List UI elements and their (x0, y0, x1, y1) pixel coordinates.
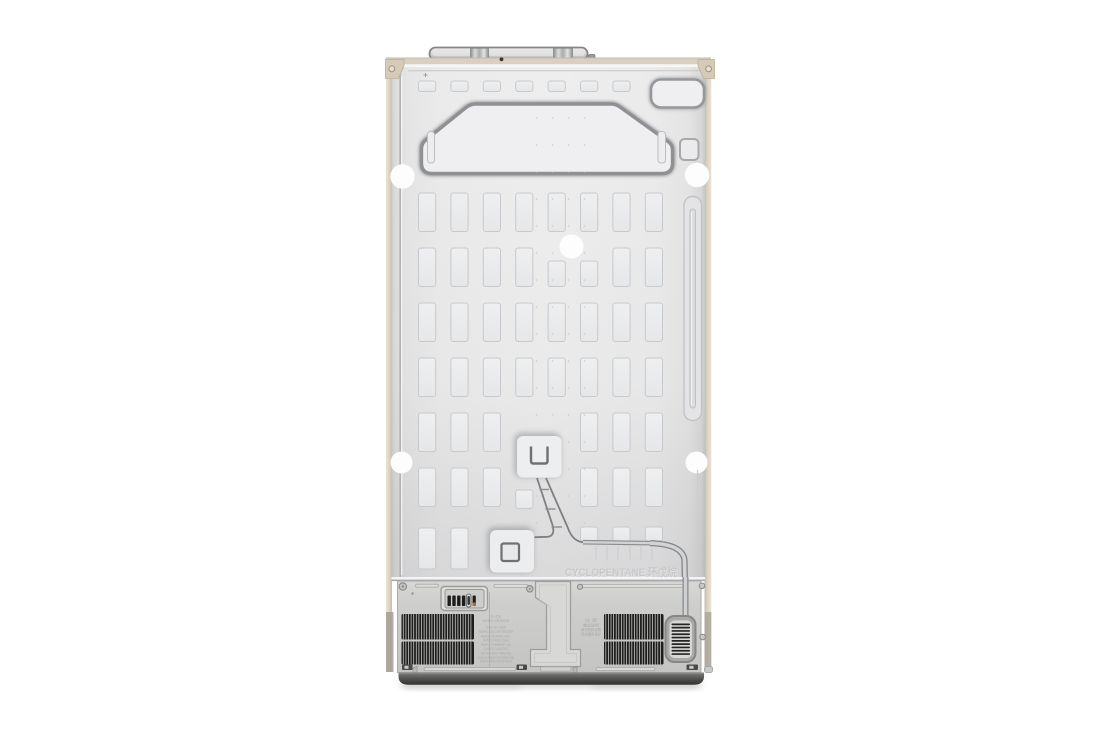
svg-text:搬运说明: 搬运说明 (583, 623, 600, 628)
svg-text:MODEL GR-B2378: MODEL GR-B2378 (483, 619, 509, 623)
svg-text:请勿倾斜放置: 请勿倾斜放置 (581, 627, 602, 632)
svg-text:LG: LG (491, 615, 501, 619)
svg-text:SIDE BY SIDE: SIDE BY SIDE (486, 626, 507, 630)
svg-text:MADE IN CHINA LG ELECTRONICS: MADE IN CHINA LG ELECTRONICS (480, 660, 512, 664)
svg-text:保持通风良好: 保持通风良好 (581, 632, 602, 637)
svg-text:REFRIGERANT R600a 65g: REFRIGERANT R600a 65g (481, 652, 511, 656)
svg-text:注 意: 注 意 (585, 618, 598, 623)
